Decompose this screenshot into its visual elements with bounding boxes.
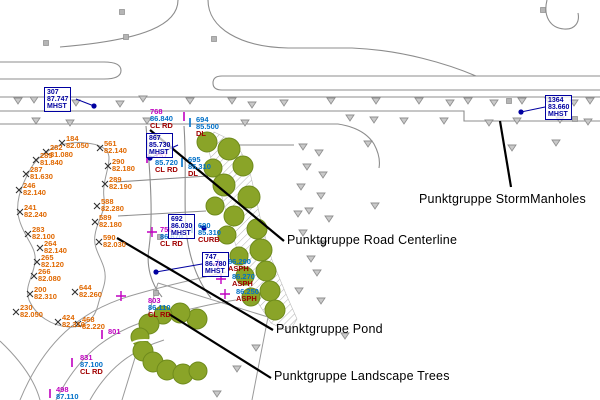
pond-point-label: 24682.140 bbox=[23, 182, 46, 196]
pond-point-label: 46882.220 bbox=[82, 316, 105, 330]
label-punktgruppe-road-centerline: Punktgruppe Road Centerline bbox=[287, 233, 457, 247]
pond-point-label: 26582.120 bbox=[41, 254, 64, 268]
road_centerline-point-label: 76886.840CL RD bbox=[150, 108, 173, 129]
pond-point-label: 26682.080 bbox=[38, 268, 61, 282]
road_centerline-point-label: 801 bbox=[108, 328, 121, 335]
road_centerline-point-label: 80386.110CL RD bbox=[148, 297, 171, 318]
pond-point-label: 59082.030 bbox=[103, 234, 126, 248]
pond-point-label: 24182.240 bbox=[24, 204, 47, 218]
pond-point-label: 58882.280 bbox=[101, 198, 124, 212]
pond-point-label: 26482.140 bbox=[44, 240, 67, 254]
label-punktgruppe-storm-manholes: Punktgruppe StormManholes bbox=[419, 192, 586, 206]
road_centerline-point-label: 83187.100CL RD bbox=[80, 354, 103, 375]
road_centerline-point-label: 49887.110 bbox=[56, 386, 79, 400]
curb_asphalt-point-label: 69585.310DL bbox=[188, 156, 211, 177]
pond-point-label: 29082.180 bbox=[112, 158, 135, 172]
curb_asphalt-point-label: 69085.310CURB bbox=[198, 222, 221, 243]
pond-point-label: 28581.840 bbox=[40, 152, 63, 166]
manhole-label-box: 69286.030MHST bbox=[168, 214, 195, 239]
curb_asphalt-point-label: 86.270ASPH bbox=[232, 273, 255, 287]
cad-viewport: 18482.05028281.08028581.84028781.6302468… bbox=[0, 0, 600, 400]
pond-point-label: 23082.050 bbox=[20, 304, 43, 318]
label-punktgruppe-pond: Punktgruppe Pond bbox=[276, 322, 383, 336]
label-punktgruppe-landscape-trees: Punktgruppe Landscape Trees bbox=[274, 369, 450, 383]
pond-point-label: 58982.180 bbox=[99, 214, 122, 228]
pond-point-label: 56182.140 bbox=[104, 140, 127, 154]
pond-point-label: 20082.310 bbox=[34, 286, 57, 300]
pond-point-label: 28982.190 bbox=[109, 176, 132, 190]
curb_asphalt-point-label: 86.290ASPH bbox=[228, 258, 251, 272]
pond-point-label: 28382.100 bbox=[32, 226, 55, 240]
pond-point-label: 28781.630 bbox=[30, 166, 53, 180]
labels-layer: 18482.05028281.08028581.84028781.6302468… bbox=[0, 0, 600, 400]
manhole-label-box: 30787.747MHST bbox=[44, 87, 71, 112]
curb_asphalt-point-label: 69485.500DL bbox=[196, 116, 219, 137]
pond-point-label: 64482.260 bbox=[79, 284, 102, 298]
curb_asphalt-point-label: 86.250ASPH bbox=[236, 288, 259, 302]
manhole-label-box: 136483.660MHST bbox=[545, 95, 572, 120]
manhole-label-box: 74786.780MHST bbox=[202, 252, 229, 277]
manhole-label-box: 86785.730MHST bbox=[146, 133, 173, 158]
